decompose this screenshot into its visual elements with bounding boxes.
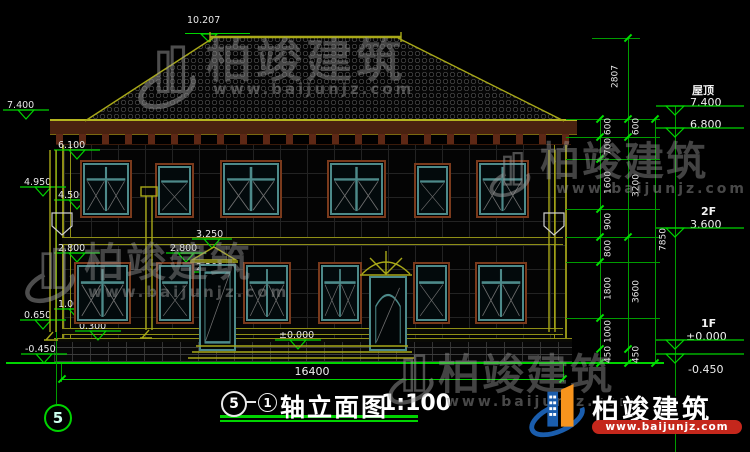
drawing-title: 轴立面图 [280,388,388,424]
title-axis-end-bubble: 1 [258,393,277,412]
entry-door-canopy [360,251,412,275]
brand-logo-icon [528,382,590,444]
roof-right-slope [398,38,564,121]
watermark-text: 柏竣建筑 [540,142,708,182]
watermark-logo [136,36,198,120]
watermark-url: www.baijunjz.com [556,182,747,196]
watermark-text: 柏竣建筑 [84,243,252,283]
axis-bubble-5: 5 [44,404,72,432]
watermark-url: www.baijunjz.com [213,82,414,97]
watermark-url: www.baijunjz.com [88,285,289,300]
cad-elevation-drawing: 16400 10.207 7.400 6.100 4.950 4.500 2.8… [0,0,750,452]
right-pilaster-cap [544,213,564,235]
title-dash [246,401,256,403]
entry-steps [188,346,414,358]
watermark-logo [22,243,78,309]
watermark-logo [386,350,436,410]
brand-logo-block: 柏竣建筑 www.baijunjz.com [528,382,590,448]
title-axis-start-bubble: 5 [221,391,247,417]
brand-url-banner: www.baijunjz.com [592,420,742,434]
downspout-hopper [141,187,157,196]
left-pilaster-cap [52,213,72,235]
watermark-logo [486,148,534,202]
watermark-text: 柏竣建筑 [206,38,406,84]
